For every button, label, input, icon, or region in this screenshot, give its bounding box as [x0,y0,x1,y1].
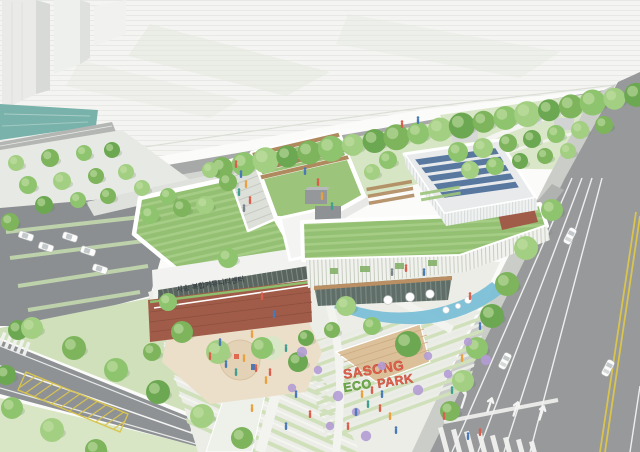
person [389,412,392,420]
person [225,360,228,368]
person [347,422,350,430]
person [235,160,238,168]
person [381,390,384,398]
flower-shrub [378,362,386,370]
person [295,390,298,398]
person [417,116,420,124]
person [219,338,222,346]
flower-shrub [333,391,343,401]
person [355,408,358,416]
person [309,410,312,418]
person [469,292,472,300]
person [285,344,288,352]
person [379,404,382,412]
person [304,167,307,175]
person [361,390,364,398]
flower-shrub [464,338,472,346]
person [235,368,238,376]
person [251,404,254,412]
flower-shrub [481,355,491,365]
flower-shrub [413,385,423,395]
person [269,368,272,376]
person [245,180,248,188]
person [443,412,446,420]
person [238,188,241,196]
person [367,400,370,408]
person [331,202,334,210]
flower-shrub [444,370,452,378]
flower-shrub [297,347,307,357]
person [371,386,374,394]
person [285,422,288,430]
aerial-rendering: 사송 복합커뮤니티센터 SASONG ECO PARK [0,0,640,452]
person [401,120,404,128]
person [243,354,246,362]
flower-shrub [424,352,432,360]
person [273,310,276,318]
person [255,364,258,372]
person [479,322,482,330]
person [391,268,394,276]
person [395,426,398,434]
person [423,268,426,276]
person [317,178,320,186]
person [209,352,212,360]
flower-shrub [361,431,371,441]
person [265,376,268,384]
person [461,354,464,362]
flower-shrub [326,422,334,430]
person [243,204,246,212]
person [261,292,264,300]
person [240,170,243,178]
person [405,264,408,272]
person [451,386,454,394]
person [479,428,482,436]
person [467,432,470,440]
person [251,330,254,338]
flower-shrub [314,366,322,374]
person [249,196,252,204]
person [321,192,324,200]
